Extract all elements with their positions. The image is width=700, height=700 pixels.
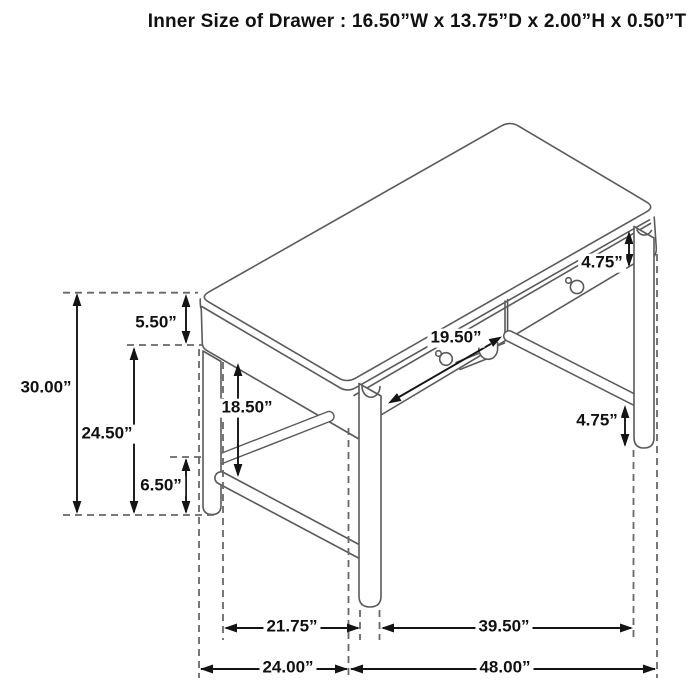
rear-stretcher-left-fill xyxy=(219,417,329,460)
left-drawer-knob xyxy=(436,351,453,366)
front-left-leg xyxy=(359,384,381,608)
dimension-diagram: Inner Size of Drawer : 16.50”W x 13.75”D… xyxy=(0,0,700,700)
dim-label-apron-depth-right: 4.75” xyxy=(578,254,626,273)
desk-drawing xyxy=(200,123,656,607)
right-stretcher-fill xyxy=(509,336,635,400)
dim-label-top-width: 48.00” xyxy=(476,659,533,678)
dim-label-top-depth: 24.00” xyxy=(259,659,316,678)
rear-left-leg xyxy=(203,351,221,515)
desk-line-drawing xyxy=(0,0,700,700)
dim-label-drawer-opening: 19.50” xyxy=(427,329,484,348)
dim-label-side-leg-span: 21.75” xyxy=(263,618,320,637)
front-right-leg xyxy=(634,227,654,449)
dim-label-top-thickness: 5.50” xyxy=(132,314,180,333)
right-drawer-knob xyxy=(566,278,584,294)
dim-label-stretcher-clearance: 4.75” xyxy=(573,412,621,431)
dim-label-knee-clearance: 18.50” xyxy=(218,399,275,418)
page-title: Inner Size of Drawer : 16.50”W x 13.75”D… xyxy=(148,11,687,33)
dim-label-floor-to-apron: 24.50” xyxy=(78,425,135,444)
dim-label-front-leg-span: 39.50” xyxy=(475,618,532,637)
left-stretcher-fill xyxy=(221,478,363,554)
dim-label-overall-height: 30.00” xyxy=(17,379,74,398)
dim-label-stretcher-height: 6.50” xyxy=(137,477,185,496)
